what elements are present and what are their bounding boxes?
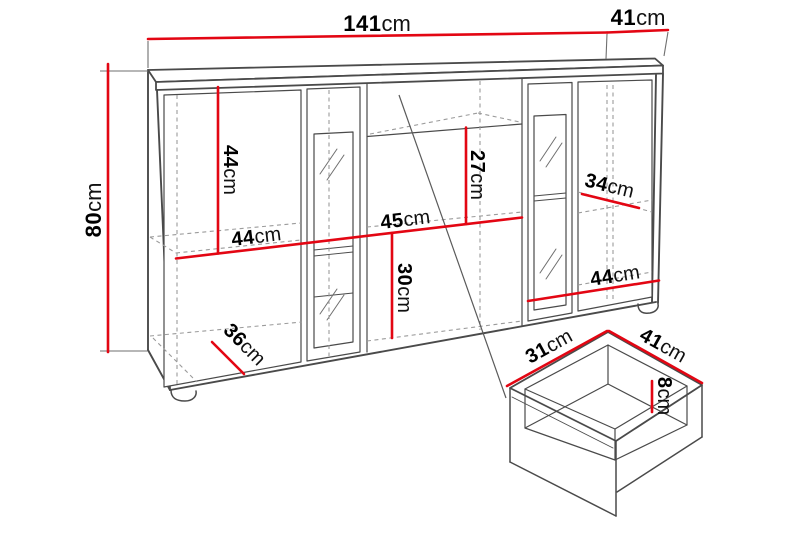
label-middle-lower-height: 30cm bbox=[393, 263, 415, 313]
label-middle-upper-height: 27cm bbox=[466, 150, 488, 200]
label-drawer-height: 8cm bbox=[653, 377, 675, 415]
label-total-height: 80cm bbox=[81, 183, 106, 238]
furniture-dimension-diagram: 141cm 41cm 80cm 44cm 44cm 27cm 45cm 30cm… bbox=[0, 0, 800, 533]
diagram-canvas: 141cm 41cm 80cm 44cm 44cm 27cm 45cm 30cm… bbox=[0, 0, 800, 533]
drawer-pointer-line bbox=[399, 95, 506, 398]
dim-line-top-depth bbox=[607, 30, 668, 33]
left-glass-door bbox=[307, 87, 360, 361]
label-total-width: 141cm bbox=[343, 11, 411, 36]
label-top-depth: 41cm bbox=[611, 5, 666, 30]
left-foot bbox=[171, 390, 196, 401]
right-glass-door bbox=[528, 83, 572, 322]
label-left-upper-height: 44cm bbox=[219, 145, 241, 195]
